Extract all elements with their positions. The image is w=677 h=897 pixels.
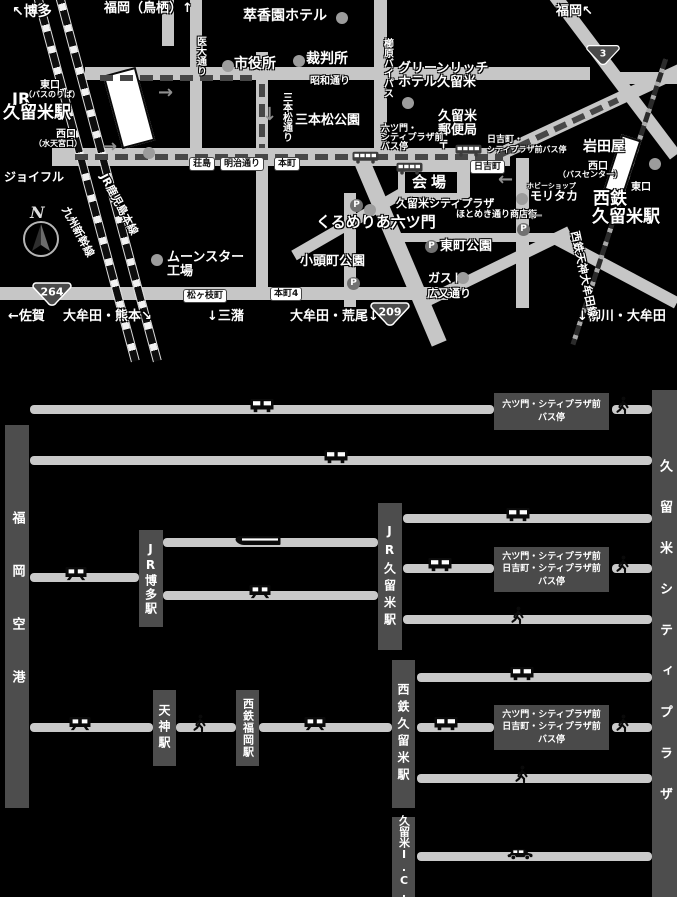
- bus-icon: [428, 557, 452, 576]
- node-kurume-ic: 久留米I.C.: [392, 817, 415, 897]
- to-fukuoka-tosu: 福岡（鳥栖）↑: [104, 2, 193, 16]
- building-dot: [516, 193, 528, 205]
- building-dot: [457, 272, 469, 284]
- building-dot: [143, 147, 155, 159]
- courthouse: 裁判所: [306, 52, 348, 67]
- svg-text:264: 264: [41, 286, 64, 299]
- node-nishitetsu-kurume-station: 西鉄久留米駅: [392, 660, 415, 808]
- jr-west-exit-note: （水天宮口）: [34, 140, 82, 148]
- direction-arrow-icon: →: [102, 138, 117, 156]
- sanbonmatsu-dori: 三本松通り: [280, 92, 291, 142]
- walk-icon: [617, 555, 630, 577]
- nishitetsu-label-2: 久留米駅: [592, 209, 660, 227]
- moonstar-factory-1: ムーンスター: [167, 251, 244, 265]
- train-icon: [249, 584, 271, 603]
- road: [618, 72, 677, 84]
- building-dot: [293, 55, 305, 67]
- car-icon: [507, 845, 534, 864]
- parking-icon: P: [425, 240, 438, 253]
- to-omuta-kumamoto: 大牟田・熊本↘: [63, 310, 152, 324]
- access-map: 会場 久留米シティプラザ N ↖博多福岡（鳥栖）↑萃香園ホテル福岡↖医大通り市役…: [0, 0, 677, 897]
- building-dot: [402, 97, 414, 109]
- parking-icon: P: [347, 277, 360, 290]
- kushihara-bypass: 櫛原バイパス: [381, 38, 392, 98]
- walk-icon: [617, 396, 630, 418]
- walk-icon: [512, 606, 525, 628]
- train-icon: [304, 716, 326, 735]
- node-jr-hakata-station: JR博多駅: [139, 530, 163, 627]
- building-dot: [222, 60, 234, 72]
- road-sign-meiji-dori: 明治通り: [221, 158, 263, 170]
- to-omuta-arao: 大牟田・荒尾↓: [290, 310, 379, 324]
- city-hall: 市役所: [234, 57, 276, 72]
- showa-dori: 昭和通り: [310, 77, 350, 88]
- hotomeki-street: ほとめき通り商店街: [456, 211, 537, 220]
- nishitetsu-east-exit: 東口: [631, 183, 651, 194]
- kurume-post-office-2: 郵便局: [438, 124, 477, 138]
- direction-arrow-icon: ←: [498, 171, 513, 189]
- node-tenjin-station: 天神駅: [153, 690, 176, 766]
- node-fukuoka-airport: 福岡空港: [5, 425, 29, 808]
- parking-icon: P: [350, 199, 363, 212]
- node-nishitetsu-fukuoka-station: 西鉄福岡駅: [236, 690, 259, 766]
- svg-text:209: 209: [379, 306, 402, 319]
- to-fukuoka: 福岡↖: [556, 5, 593, 19]
- hiromata-dori: 広又通り: [427, 288, 471, 300]
- bus-stop-icon: [352, 149, 379, 168]
- route-line: [417, 774, 652, 783]
- node-kurume-city-plaza: 久留米シティプラザ: [652, 390, 677, 897]
- building-dot: [649, 158, 661, 170]
- building-dot: [151, 254, 163, 266]
- bus-icon: [506, 507, 530, 526]
- route-line: [417, 673, 652, 682]
- walk-icon: [617, 714, 630, 736]
- shink-icon: [235, 531, 281, 550]
- to-hakata: ↖博多: [12, 5, 52, 20]
- kurume-post-office-1: 久留米: [438, 110, 477, 124]
- nishitetsu-west-exit-note: （バスセンター）: [558, 171, 622, 179]
- road-sign-honmachi4: 本町4: [271, 288, 301, 300]
- route-line: [30, 723, 153, 732]
- road-sign-matsugaedamachi: 松ヶ枝町: [184, 290, 226, 302]
- road-sign-honmachi: 本町: [275, 158, 299, 170]
- svg-text:3: 3: [600, 48, 607, 59]
- to-saga: ←佐賀: [8, 310, 45, 324]
- kurumeria-mutsumon: くるめりあ六ツ門: [316, 215, 436, 231]
- compass-icon: [22, 220, 60, 262]
- idai-dori: 医大通り: [194, 36, 205, 76]
- iwataya: 岩田屋: [583, 140, 625, 155]
- bus-stop-icon: [396, 160, 423, 179]
- direction-arrow-icon: ↓: [262, 106, 277, 124]
- building-dot: [364, 204, 376, 216]
- direction-arrow-icon: ←: [528, 207, 543, 225]
- bus-route-dashed: [100, 75, 252, 81]
- kogashiramachi-park: 小頭町公園: [300, 255, 365, 269]
- route-209-shield: 209: [370, 302, 410, 330]
- road-sign-shojima: 荘島: [190, 158, 214, 170]
- building-dot: [336, 12, 348, 24]
- bus-icon: [324, 449, 348, 468]
- route-3-shield: 3: [586, 43, 620, 71]
- bus-icon: [250, 398, 274, 417]
- jr-kurume-station-label: 久留米駅: [3, 105, 71, 123]
- green-rich-hotel-1: グリーンリッチ: [398, 62, 488, 76]
- route-line: [417, 852, 652, 861]
- walk-icon: [194, 714, 207, 736]
- green-rich-hotel-2: ホテル久留米: [398, 76, 476, 90]
- jr-east-exit-note: （バスのりば）: [24, 91, 80, 99]
- route-line: [403, 615, 652, 624]
- hiyoshi-busstop-2: シティプラザ前バス停: [487, 146, 567, 154]
- busstop-box-1: 六ツ門・シティプラザ前バス停: [494, 393, 609, 430]
- sanbonmatsu-park: 三本松公園: [295, 114, 360, 128]
- moonstar-factory-2: 工場: [167, 265, 193, 279]
- node-jr-kurume-station: JR久留米駅: [378, 503, 402, 650]
- venue-subtitle: 久留米シティプラザ: [396, 195, 494, 211]
- road: [550, 232, 677, 308]
- train-icon: [69, 716, 91, 735]
- mutsumon-busstop-3: バス停: [381, 143, 408, 152]
- moritaka: モリタカ: [530, 190, 578, 203]
- direction-arrow-icon: →: [158, 84, 173, 102]
- busstop-box-2: 六ツ門・シティプラザ前日吉町・シティプラザ前バス停: [494, 547, 609, 592]
- walk-icon: [516, 765, 529, 787]
- bus-stop-icon: [455, 142, 482, 161]
- joyful: ジョイフル: [4, 171, 64, 184]
- to-mizuma: ↓三潴: [207, 310, 244, 324]
- higashimachi-park: 東町公園: [440, 240, 492, 254]
- train-icon: [65, 566, 87, 585]
- bus-icon: [510, 666, 534, 685]
- busstop-box-3: 六ツ門・シティプラザ前日吉町・シティプラザ前バス停: [494, 705, 609, 750]
- bus-icon: [434, 716, 458, 735]
- suikoen-hotel: 萃香園ホテル: [243, 9, 327, 24]
- route-264-shield: 264: [32, 282, 72, 310]
